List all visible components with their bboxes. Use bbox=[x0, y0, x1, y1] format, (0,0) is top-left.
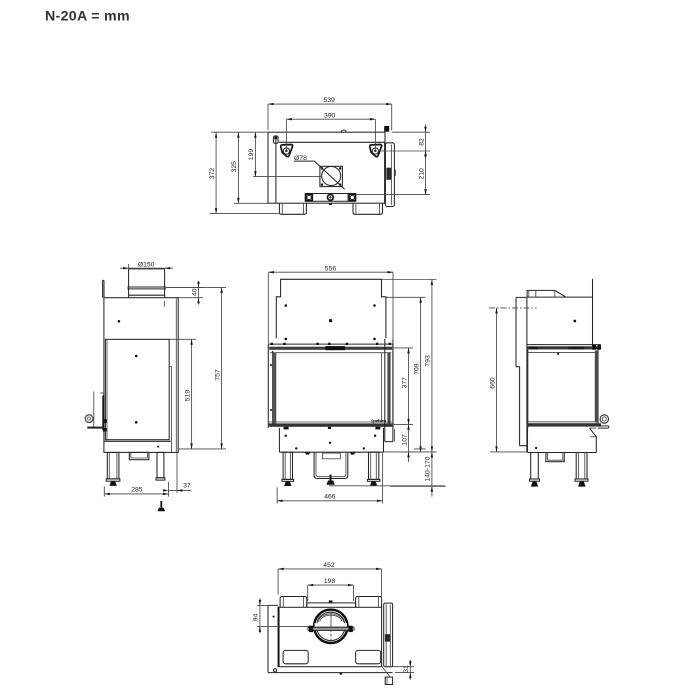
svg-text:519: 519 bbox=[184, 390, 191, 402]
svg-text:198: 198 bbox=[324, 578, 336, 585]
svg-text:107: 107 bbox=[401, 434, 408, 446]
svg-text:452: 452 bbox=[323, 562, 335, 569]
svg-text:Ø150: Ø150 bbox=[138, 262, 155, 269]
svg-text:757: 757 bbox=[214, 369, 221, 381]
svg-text:466: 466 bbox=[324, 494, 336, 501]
svg-text:N-20A = mm: N-20A = mm bbox=[45, 9, 130, 25]
svg-text:390: 390 bbox=[324, 112, 336, 119]
svg-text:Spartherm: Spartherm bbox=[371, 418, 387, 423]
svg-text:82: 82 bbox=[418, 138, 425, 146]
svg-text:140-170: 140-170 bbox=[425, 456, 432, 481]
svg-text:660: 660 bbox=[489, 377, 496, 389]
svg-text:372: 372 bbox=[209, 168, 216, 180]
svg-text:539: 539 bbox=[324, 97, 336, 104]
svg-text:556: 556 bbox=[325, 265, 337, 272]
svg-text:210: 210 bbox=[418, 168, 425, 180]
svg-text:Ø78: Ø78 bbox=[294, 155, 307, 162]
svg-text:285: 285 bbox=[131, 487, 143, 494]
svg-text:793: 793 bbox=[425, 355, 432, 367]
svg-text:325: 325 bbox=[231, 161, 238, 173]
svg-text:40: 40 bbox=[191, 288, 198, 296]
svg-text:37: 37 bbox=[183, 483, 191, 490]
svg-text:709: 709 bbox=[413, 363, 420, 375]
svg-text:377: 377 bbox=[401, 377, 408, 389]
svg-text:31: 31 bbox=[403, 665, 410, 673]
svg-text:94: 94 bbox=[253, 613, 260, 621]
svg-text:199: 199 bbox=[248, 149, 255, 161]
